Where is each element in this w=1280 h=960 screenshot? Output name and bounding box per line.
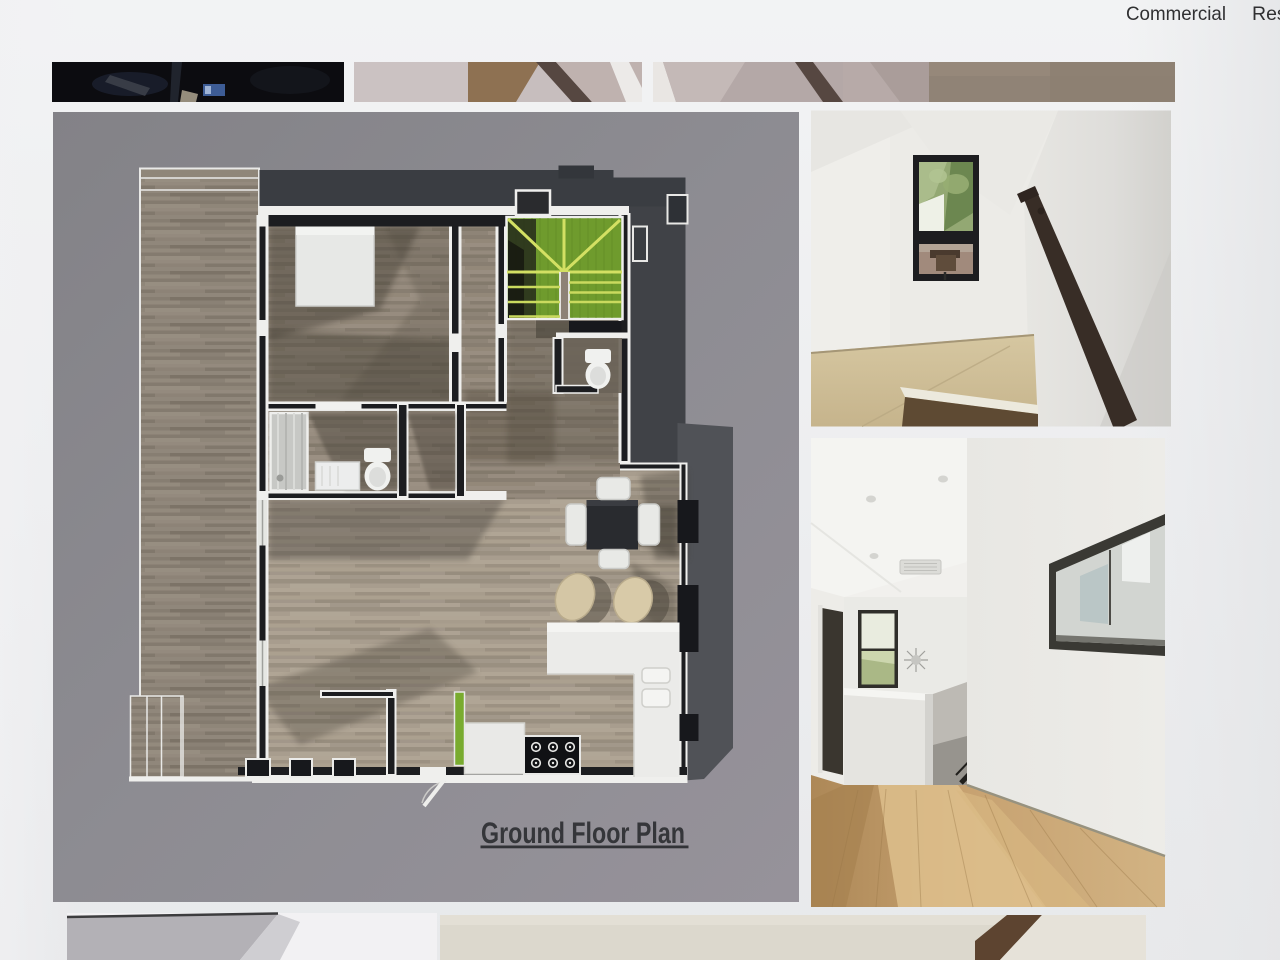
svg-text:Commercial: Commercial — [1126, 3, 1226, 25]
svg-text:Res: Res — [1252, 3, 1280, 25]
svg-text:Ground Floor Plan: Ground Floor Plan — [481, 817, 685, 850]
